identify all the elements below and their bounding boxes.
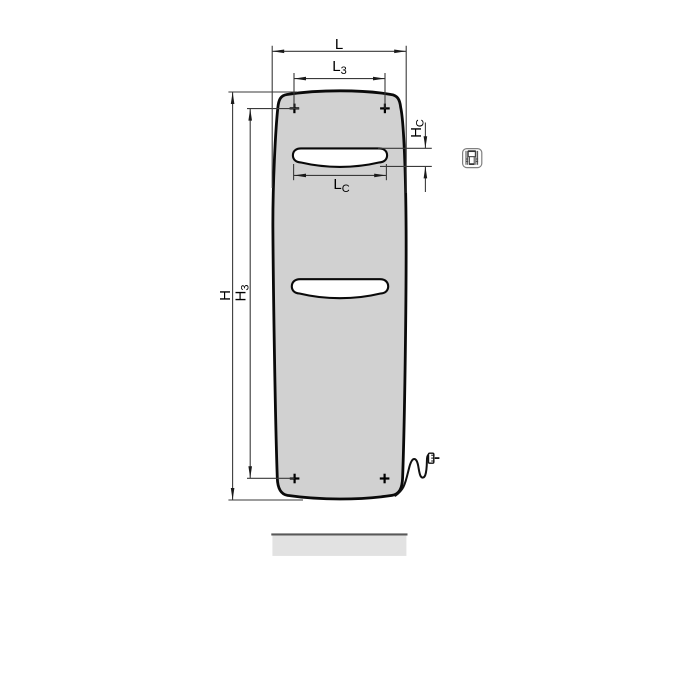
svg-text:L3: L3 xyxy=(332,58,346,77)
svg-text:H3: H3 xyxy=(233,285,252,302)
svg-text:HC: HC xyxy=(408,119,427,138)
svg-text:L: L xyxy=(335,36,343,53)
svg-text:H: H xyxy=(217,290,234,301)
